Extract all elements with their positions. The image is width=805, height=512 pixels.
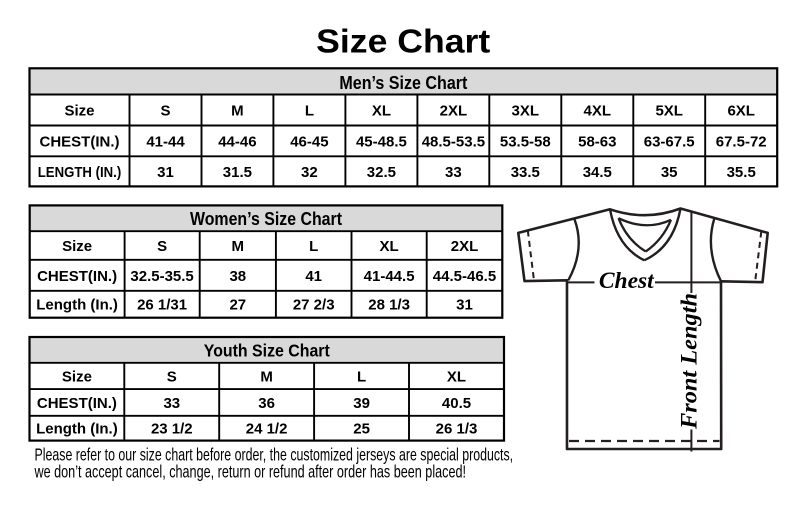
svg-text:LENGTH (IN.): LENGTH (IN.) [38, 164, 122, 181]
svg-text:S: S [167, 368, 177, 385]
svg-text:32.5: 32.5 [367, 164, 396, 181]
svg-text:CHEST(IN.): CHEST(IN.) [37, 395, 117, 412]
svg-text:M: M [231, 103, 244, 120]
svg-text:24 1/2: 24 1/2 [246, 421, 288, 438]
svg-text:67.5-72: 67.5-72 [716, 133, 767, 150]
svg-text:Youth Size Chart: Youth Size Chart [204, 340, 330, 360]
svg-text:S: S [157, 238, 167, 255]
svg-text:M: M [260, 368, 273, 385]
svg-text:33: 33 [445, 164, 462, 181]
svg-text:28 1/3: 28 1/3 [368, 297, 410, 314]
svg-text:CHEST(IN.): CHEST(IN.) [40, 133, 120, 150]
svg-text:53.5-58: 53.5-58 [500, 133, 551, 150]
svg-text:Men’s Size Chart: Men’s Size Chart [339, 72, 467, 93]
svg-text:44.5-46.5: 44.5-46.5 [433, 268, 496, 285]
svg-text:31.5: 31.5 [223, 164, 252, 181]
svg-text:5XL: 5XL [655, 103, 683, 120]
svg-text:Length (In.): Length (In.) [36, 297, 118, 314]
svg-text:S: S [160, 103, 170, 120]
svg-text:L: L [305, 103, 314, 120]
svg-text:40.5: 40.5 [442, 395, 471, 412]
svg-text:33.5: 33.5 [511, 164, 540, 181]
svg-text:58-63: 58-63 [578, 133, 616, 150]
svg-text:6XL: 6XL [727, 103, 755, 120]
svg-text:45-48.5: 45-48.5 [356, 133, 407, 150]
svg-text:Women’s Size Chart: Women’s Size Chart [190, 208, 342, 229]
svg-text:26 1/3: 26 1/3 [436, 421, 478, 438]
svg-text:27: 27 [229, 297, 246, 314]
svg-text:XL: XL [447, 368, 466, 385]
svg-text:Chest: Chest [599, 268, 655, 294]
svg-text:XL: XL [380, 238, 399, 255]
svg-text:26 1/31: 26 1/31 [137, 297, 187, 314]
svg-text:Size: Size [62, 368, 92, 385]
svg-text:48.5-53.5: 48.5-53.5 [422, 133, 485, 150]
svg-text:46-45: 46-45 [290, 133, 328, 150]
svg-text:CHEST(IN.): CHEST(IN.) [37, 268, 117, 285]
svg-text:Size Chart: Size Chart [316, 22, 490, 59]
svg-text:L: L [309, 238, 318, 255]
svg-text:32: 32 [301, 164, 318, 181]
svg-text:Front Length: Front Length [677, 293, 703, 430]
svg-text:36: 36 [258, 395, 275, 412]
svg-text:33: 33 [163, 395, 180, 412]
svg-text:63-67.5: 63-67.5 [644, 133, 695, 150]
svg-text:XL: XL [372, 103, 391, 120]
svg-text:3XL: 3XL [512, 103, 540, 120]
svg-text:44-46: 44-46 [218, 133, 256, 150]
svg-text:25: 25 [353, 421, 370, 438]
svg-text:41: 41 [305, 268, 322, 285]
svg-text:27 2/3: 27 2/3 [293, 297, 335, 314]
svg-text:2XL: 2XL [440, 103, 468, 120]
svg-text:38: 38 [229, 268, 246, 285]
svg-text:L: L [357, 368, 366, 385]
svg-text:2XL: 2XL [451, 238, 479, 255]
svg-text:Length (In.): Length (In.) [36, 421, 118, 438]
svg-text:41-44.5: 41-44.5 [364, 268, 415, 285]
svg-text:23 1/2: 23 1/2 [151, 421, 193, 438]
svg-text:Size: Size [62, 238, 92, 255]
svg-text:34.5: 34.5 [583, 164, 612, 181]
svg-text:32.5-35.5: 32.5-35.5 [130, 268, 193, 285]
svg-text:39: 39 [353, 395, 370, 412]
svg-text:35: 35 [661, 164, 678, 181]
svg-text:M: M [232, 238, 245, 255]
svg-text:31: 31 [157, 164, 174, 181]
svg-text:41-44: 41-44 [146, 133, 185, 150]
svg-text:35.5: 35.5 [727, 164, 756, 181]
svg-text:4XL: 4XL [584, 103, 612, 120]
svg-text:we don’t accept cancel, change: we don’t accept cancel, change, return o… [34, 462, 466, 482]
svg-text:31: 31 [456, 297, 473, 314]
svg-text:Size: Size [64, 103, 94, 120]
